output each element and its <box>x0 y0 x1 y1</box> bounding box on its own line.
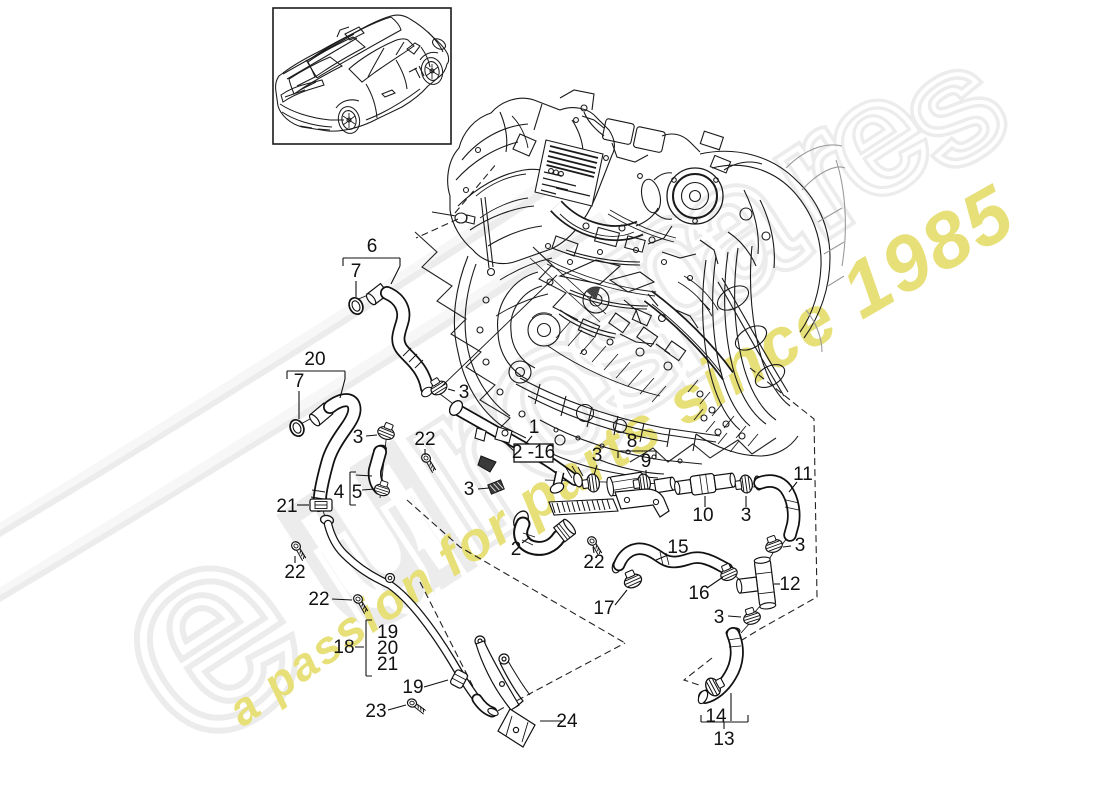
svg-text:9: 9 <box>641 451 652 472</box>
svg-text:20: 20 <box>304 349 325 370</box>
svg-text:3: 3 <box>459 382 470 403</box>
svg-text:21: 21 <box>377 654 398 675</box>
svg-text:6: 6 <box>367 236 378 257</box>
svg-text:11: 11 <box>793 464 813 485</box>
svg-text:10: 10 <box>692 505 713 526</box>
svg-text:21: 21 <box>276 496 297 517</box>
svg-text:4: 4 <box>334 482 345 503</box>
svg-text:19: 19 <box>402 677 423 698</box>
svg-text:3: 3 <box>592 445 603 466</box>
svg-text:2: 2 <box>511 539 522 560</box>
svg-text:3: 3 <box>714 607 725 628</box>
svg-text:8: 8 <box>627 431 638 452</box>
svg-text:24: 24 <box>556 711 578 732</box>
svg-text:3: 3 <box>741 505 752 526</box>
svg-text:22: 22 <box>284 562 305 583</box>
svg-text:17: 17 <box>593 598 614 619</box>
svg-text:7: 7 <box>351 261 362 282</box>
svg-text:22: 22 <box>414 429 435 450</box>
svg-text:3: 3 <box>353 427 364 448</box>
svg-text:3: 3 <box>464 479 475 500</box>
svg-text:18: 18 <box>333 637 354 658</box>
svg-text:5: 5 <box>352 482 363 503</box>
svg-text:2 -16: 2 -16 <box>512 442 555 463</box>
svg-text:14: 14 <box>705 706 727 727</box>
svg-text:12: 12 <box>779 574 800 595</box>
svg-text:22: 22 <box>583 552 604 573</box>
svg-text:23: 23 <box>365 701 386 722</box>
svg-text:16: 16 <box>688 583 709 604</box>
svg-text:13: 13 <box>713 729 734 750</box>
svg-text:15: 15 <box>667 537 688 558</box>
svg-text:1: 1 <box>529 417 540 438</box>
svg-text:7: 7 <box>294 371 305 392</box>
svg-text:22: 22 <box>308 589 329 610</box>
svg-text:3: 3 <box>795 535 806 556</box>
